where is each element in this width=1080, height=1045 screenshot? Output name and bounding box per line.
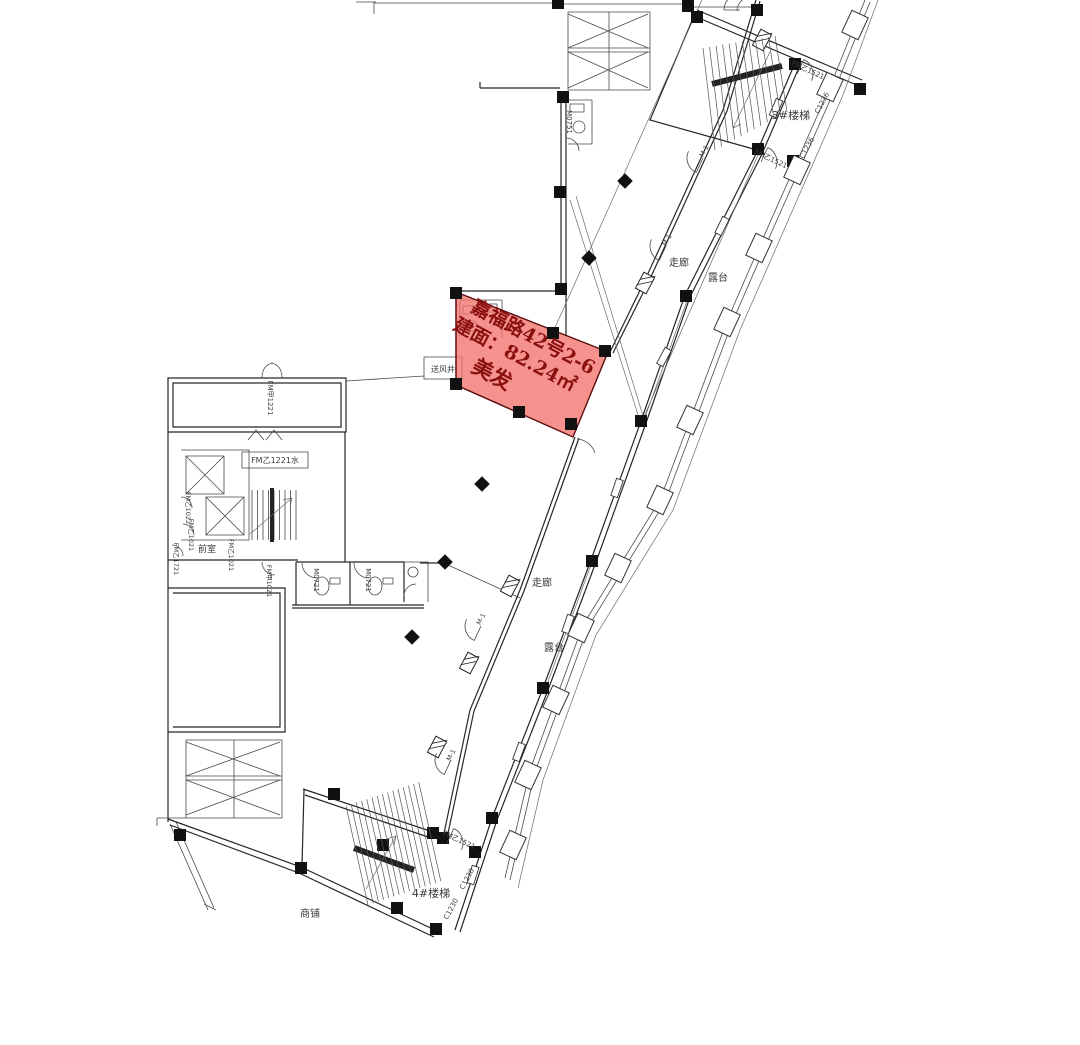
terrace-post (605, 553, 631, 582)
floor-label: FM乙1221水 (251, 455, 299, 465)
floor-label: M-1 (661, 233, 674, 247)
window (611, 478, 623, 497)
column (537, 682, 549, 694)
generated-geometry (174, 0, 868, 935)
floor-label: M0721 (364, 568, 372, 592)
stair3-tread (716, 46, 728, 143)
floor-label: 送风井 (431, 364, 455, 374)
stair3-tread (755, 39, 767, 122)
column (691, 11, 703, 23)
floor-plan-canvas: 嘉福路42号2-6 建面：82.24㎡ 美发 3#楼梯4#楼梯走廊露台走廊露台商… (0, 0, 1080, 1045)
stair3-tread (762, 38, 774, 119)
column (557, 91, 569, 103)
column (854, 83, 866, 95)
column (599, 345, 611, 357)
column (328, 788, 340, 800)
floor-label: 商铺 (300, 907, 320, 920)
floor-label: FM乙1021 (187, 519, 195, 551)
floor-label: M0751 (565, 110, 573, 134)
column-diamond (437, 554, 453, 570)
column (751, 4, 763, 16)
terrace-post (714, 307, 740, 336)
stair3-tread (749, 40, 761, 125)
stair4-tread (403, 787, 425, 886)
stair4-tread (388, 792, 410, 891)
floor-label: M0721 (312, 568, 320, 592)
floor-label: 4#楼梯 (412, 886, 450, 900)
floor-label: 前室 (198, 543, 216, 555)
stair4-tread (372, 798, 394, 897)
column-diamond (404, 629, 420, 645)
column (174, 829, 186, 841)
floor-label: 3#楼梯 (772, 108, 810, 122)
stair3-tread (710, 47, 722, 147)
floor-label: FM甲1221 (266, 381, 274, 416)
floor-label: 走廊 (669, 256, 689, 269)
column (450, 378, 462, 390)
stair4-tread (393, 791, 415, 890)
column (555, 283, 567, 295)
column (552, 0, 564, 9)
floor-label: 露台 (544, 641, 564, 654)
floor-label: M-1 (698, 144, 711, 158)
floor-plan-page: 嘉福路42号2-6 建面：82.24㎡ 美发 3#楼梯4#楼梯走廊露台走廊露台商… (0, 0, 1080, 1045)
column (513, 406, 525, 418)
column (486, 812, 498, 824)
floor-label: M-1 (445, 748, 458, 762)
column (680, 290, 692, 302)
column (682, 0, 694, 12)
floor-label: FM甲1021 (265, 565, 273, 597)
column (391, 902, 403, 914)
column (586, 555, 598, 567)
escalator-top (568, 12, 650, 90)
floor-label: M-1 (475, 612, 488, 626)
column (635, 415, 647, 427)
stair3-tread (742, 41, 754, 129)
floor-label: FM乙1021 (227, 539, 235, 571)
column-diamond (617, 173, 633, 189)
floor-label: C1230 (442, 897, 460, 921)
terrace-post (500, 830, 526, 859)
column (295, 862, 307, 874)
floor-label: 露台 (708, 271, 728, 284)
terrace-post (842, 10, 868, 39)
escalator-bottom (186, 740, 282, 818)
column (554, 186, 566, 198)
column-diamond (474, 476, 490, 492)
column (450, 287, 462, 299)
stair3-tread (703, 48, 715, 150)
column (565, 418, 577, 430)
floor-label: FM乙1521 (753, 148, 788, 170)
floor-label: FM乙1721 (172, 543, 180, 575)
stair3-tread (729, 44, 741, 137)
terrace-post (746, 233, 772, 262)
stair4-tread (398, 789, 420, 888)
column (430, 923, 442, 935)
floor-label: C1236 (798, 136, 816, 160)
walls-layer (157, 0, 878, 937)
floor-label: 走廊 (532, 576, 552, 589)
